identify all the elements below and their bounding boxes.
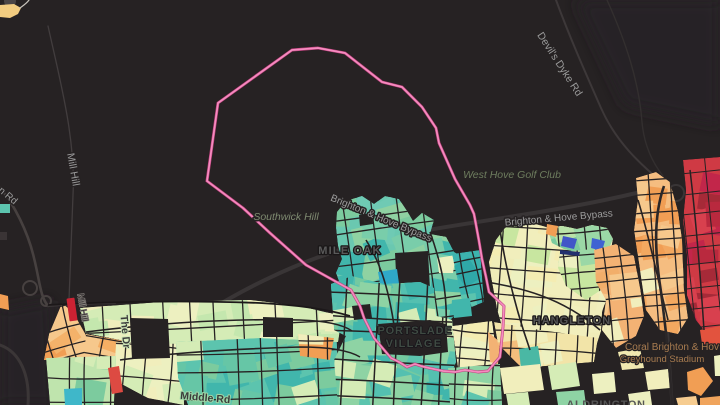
svg-text:ALDRINGTON: ALDRINGTON [566, 399, 645, 405]
svg-text:Coral Brighton & Hov: Coral Brighton & Hov [625, 342, 719, 353]
svg-text:Southwick Hill: Southwick Hill [253, 211, 319, 223]
svg-text:HANGLETON: HANGLETON [533, 315, 611, 327]
svg-text:Greyhound Stadium: Greyhound Stadium [620, 354, 705, 365]
svg-text:VILLAGE: VILLAGE [386, 338, 443, 350]
svg-text:West Hove Golf Club: West Hove Golf Club [463, 169, 561, 181]
svg-text:PORTSLADE: PORTSLADE [377, 325, 452, 337]
svg-text:MILE OAK: MILE OAK [318, 245, 381, 257]
